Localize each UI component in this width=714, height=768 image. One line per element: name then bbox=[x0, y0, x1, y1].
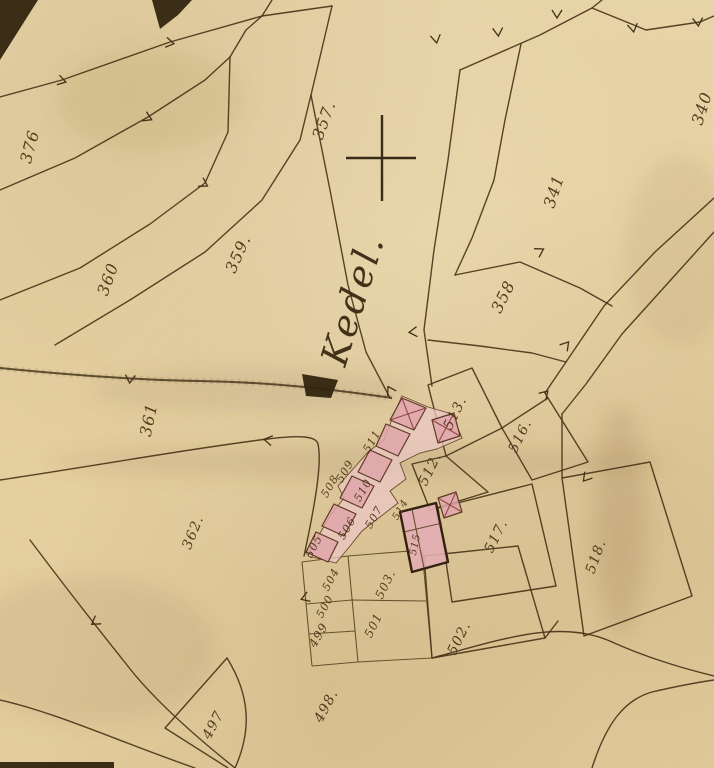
cadastral-map-canvas: Kedel. 376360359.357.341340358361362.513… bbox=[0, 0, 714, 768]
cadastral-map: Kedel. 376360359.357.341340358361362.513… bbox=[0, 0, 714, 768]
bottom-edge-mark bbox=[0, 762, 114, 768]
